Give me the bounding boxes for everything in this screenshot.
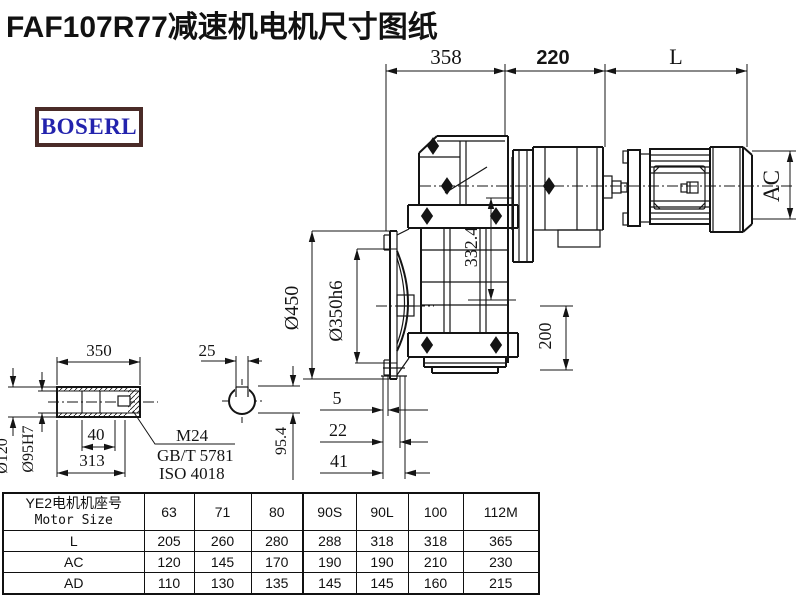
table-cell: 145 [356,573,408,595]
table-cell: 190 [356,552,408,573]
dim-350h6-label: Ø350h6 [326,280,347,341]
table-col-63: 63 [144,493,194,531]
dim-200-label: 200 [535,323,555,350]
note-m24: M24 [176,426,209,445]
dim-40-label: 40 [88,425,105,444]
row-label-L: L [3,531,144,552]
dim-22-label: 22 [329,420,347,440]
dim-358-label: 358 [430,45,462,69]
dim-L-label: L [669,44,682,69]
table-col-90l: 90L [356,493,408,531]
table-cell: 215 [463,573,539,595]
table-cell: 365 [463,531,539,552]
table-row-L: L 205 260 280 288 318 318 365 [3,531,539,552]
table-cell: 170 [251,552,303,573]
note-gbt-5781: GB/T 5781 [157,446,234,465]
table-cell: 260 [194,531,251,552]
row-label-AC: AC [3,552,144,573]
table-cell: 288 [303,531,356,552]
table-cell: 205 [144,531,194,552]
table-header-en: Motor Size [4,512,144,529]
table-cell: 230 [463,552,539,573]
table-cell: 145 [194,552,251,573]
dim-25-label: 25 [199,341,216,360]
table-header-motor-size: YE2电机机座号 Motor Size [3,493,144,531]
dim-5-label: 5 [333,388,342,408]
table-cell: 130 [194,573,251,595]
table-cell: 135 [251,573,303,595]
bore-section-detail [229,385,255,414]
dim-41-label: 41 [330,451,348,471]
table-cell: 280 [251,531,303,552]
table-cell: 318 [408,531,463,552]
dim-220-label: 220 [536,47,569,69]
table-cell: 120 [144,552,194,573]
dim-95h7-label: Ø95H7 [20,425,37,472]
dim-350-label: 350 [86,341,112,360]
table-cell: 210 [408,552,463,573]
table-col-112m: 112M [463,493,539,531]
table-col-80: 80 [251,493,303,531]
table-col-100: 100 [408,493,463,531]
dim-450-label: Ø450 [281,286,303,330]
table-header-row: YE2电机机座号 Motor Size 63 71 80 90S 90L 100… [3,493,539,531]
motor-adapter [513,147,627,262]
dim-332-4-label: 332.4 [461,227,481,268]
table-col-90s: 90S [303,493,356,531]
drawing-page: FAF107R77减速机电机尺寸图纸 BOSERL [0,0,800,596]
table-cell: 160 [408,573,463,595]
note-iso-4018: ISO 4018 [159,464,225,483]
table-cell: 145 [303,573,356,595]
dim-313-label: 313 [79,451,105,470]
table-header-cn: YE2电机机座号 [4,495,144,512]
table-col-71: 71 [194,493,251,531]
table-row-AC: AC 120 145 170 190 190 210 230 [3,552,539,573]
table-cell: 190 [303,552,356,573]
motor-size-table: YE2电机机座号 Motor Size 63 71 80 90S 90L 100… [2,492,540,595]
dim-95-4-label: 95.4 [273,427,290,455]
dim-AC-label: AC [759,170,784,202]
table-cell: 110 [144,573,194,595]
dim-120-label: Ø120 [0,438,11,474]
table-row-AD: AD 110 130 135 145 145 160 215 [3,573,539,595]
table-cell: 318 [356,531,408,552]
row-label-AD: AD [3,573,144,595]
motor [623,147,752,232]
